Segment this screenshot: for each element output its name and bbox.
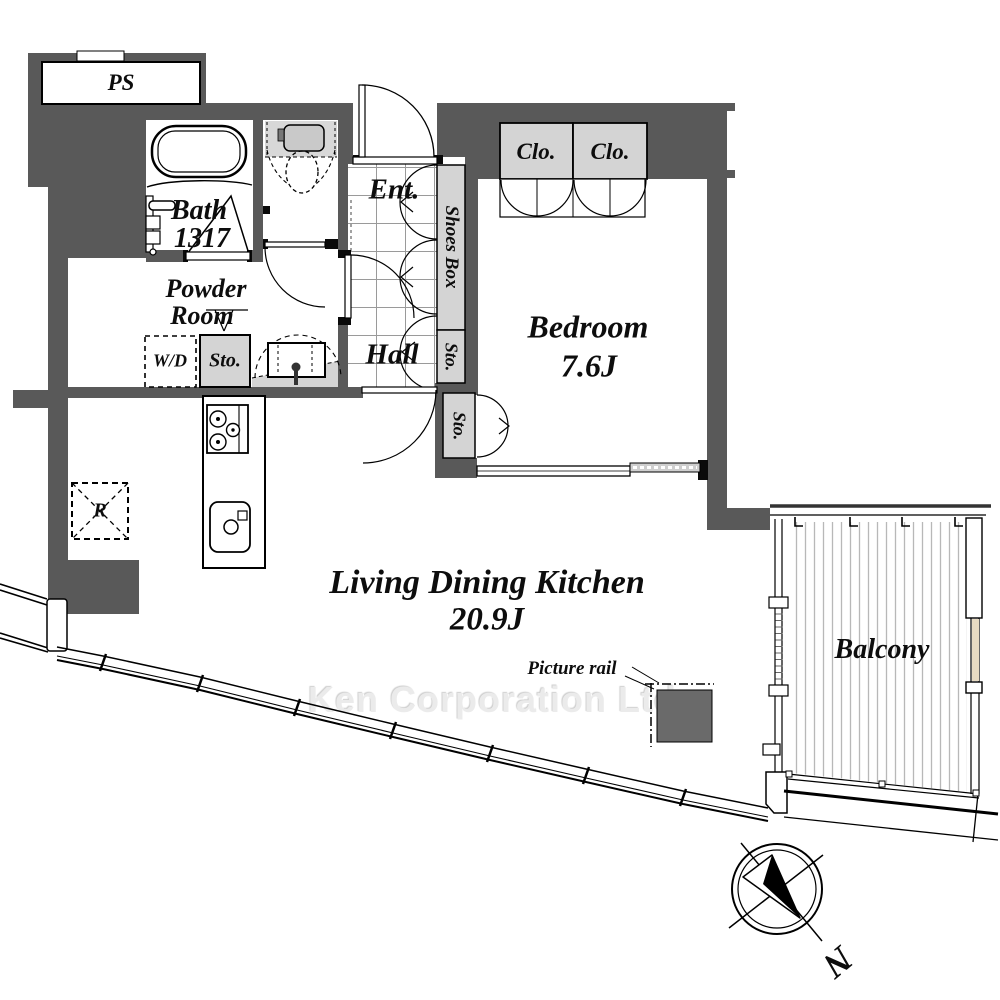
storage-entry-label: Sto.: [441, 343, 462, 372]
bathtub: [147, 126, 252, 187]
entrance-door: [353, 85, 437, 164]
bedroom-size-label: 7.6J: [561, 348, 617, 385]
hall-ldk-door: [362, 387, 437, 463]
storage-powder-label: Sto.: [209, 350, 241, 373]
entrance-label: Ent.: [369, 174, 420, 207]
powder-room-label-line2: Room: [170, 301, 234, 331]
refrigerator-label: R: [93, 500, 106, 523]
washer-dryer-label: W/D: [153, 351, 187, 372]
closet-left-label: Clo.: [517, 139, 556, 165]
ldk-label: Living Dining Kitchen: [329, 564, 645, 602]
storage-bedroom-label: Sto.: [449, 412, 470, 441]
picture-rail-label: Picture rail: [527, 658, 616, 680]
ps-label: PS: [108, 70, 135, 96]
floor-plan: Ken Corporation Ltd.: [0, 0, 1000, 1000]
hall-label: Hall: [365, 339, 418, 372]
shoes-box-label: Shoes Box: [440, 206, 462, 289]
stove: [207, 405, 248, 453]
picture-rail-pillar: [625, 667, 714, 747]
balcony-area: [763, 506, 998, 842]
compass: [729, 843, 823, 941]
closets: [500, 123, 647, 217]
floor-plan-drawing: [0, 0, 1000, 1000]
balcony-label: Balcony: [835, 634, 930, 666]
bedroom-label: Bedroom: [528, 309, 649, 346]
ldk-size-label: 20.9J: [450, 602, 524, 639]
sliding-partition: [477, 463, 700, 476]
kitchen-sink: [210, 502, 250, 552]
toilet-door: [265, 242, 325, 307]
powder-room-label-line1: Powder: [166, 274, 247, 304]
bath-size-label: 1317: [174, 223, 230, 255]
closet-right-label: Clo.: [591, 139, 630, 165]
